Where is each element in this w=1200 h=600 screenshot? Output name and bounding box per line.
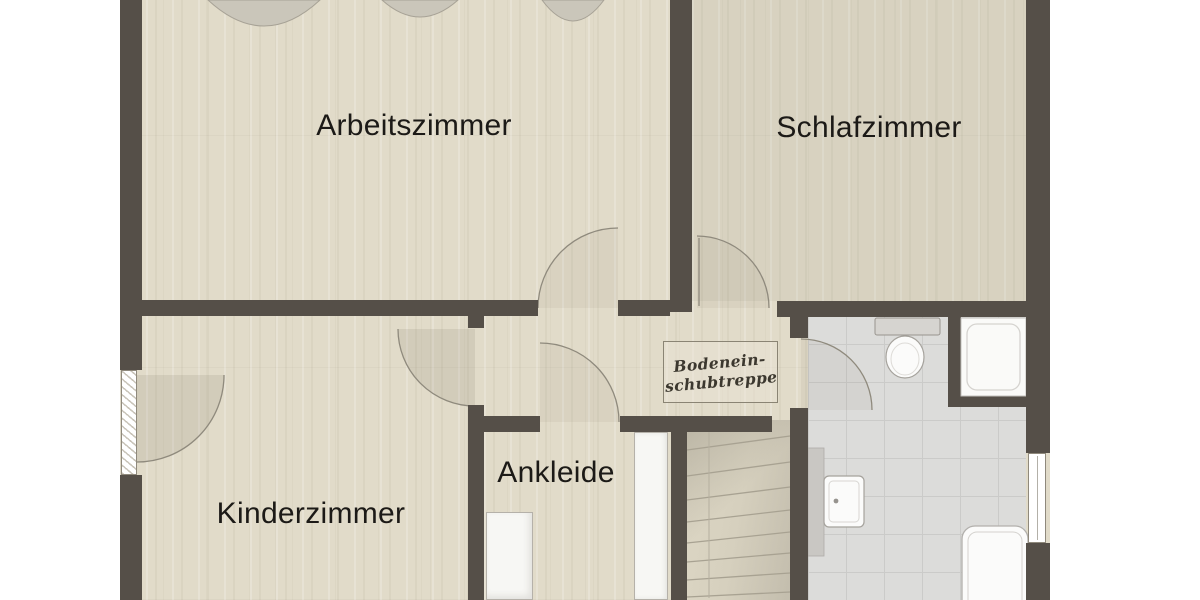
toilet (875, 318, 940, 378)
wall-left-upper (120, 0, 142, 370)
door-fan-schlafzimmer (697, 236, 769, 308)
wall-horizontal-bath (777, 301, 1026, 317)
wall-ankleide-right (671, 416, 687, 600)
top-swing-arc-3 (542, 0, 604, 21)
door-fan-bathroom (801, 339, 872, 410)
wall-ankleide-top-left (484, 416, 540, 432)
door-fan-ankleide (540, 343, 619, 422)
window-left (121, 370, 137, 475)
stair-treads (687, 432, 790, 598)
wall-kinder-right-stub (468, 316, 484, 328)
wall-horizontal-mid (618, 300, 670, 316)
shower (948, 316, 1026, 407)
top-swing-arc-2 (382, 0, 458, 17)
room-label-arbeitszimmer: Arbeitszimmer (316, 109, 512, 143)
door-fan-kinderzimmer (398, 329, 475, 406)
wall-bath-left (790, 408, 808, 600)
wall-right-lower (1026, 543, 1050, 600)
washbasin (808, 448, 864, 556)
wall-bath-left-stub (790, 301, 808, 338)
floor-plan: Bodenein- schubtreppe Arbeitszimmer Schl… (120, 0, 1050, 600)
window-right (1028, 453, 1046, 543)
wall-horizontal-left (142, 300, 538, 316)
wall-left-lower (120, 475, 142, 600)
window-right-frame-line (1037, 456, 1038, 540)
wall-kinder-right (468, 405, 484, 600)
room-label-schlafzimmer: Schlafzimmer (776, 111, 961, 145)
window-fan-left (137, 375, 224, 462)
door-fan-arbeitszimmer (538, 228, 618, 308)
room-label-kinderzimmer: Kinderzimmer (217, 497, 406, 531)
wall-right-upper (1026, 0, 1050, 453)
wall-divider-arbeits-schlaf (670, 0, 692, 312)
floor-plan-image: Bodenein- schubtreppe Arbeitszimmer Schl… (0, 0, 1200, 600)
wall-ankleide-top-right (620, 416, 772, 432)
room-label-ankleide: Ankleide (497, 456, 614, 490)
bathtub (962, 526, 1028, 600)
top-swing-arc-group (208, 0, 604, 26)
top-swing-arc-1 (208, 0, 320, 26)
